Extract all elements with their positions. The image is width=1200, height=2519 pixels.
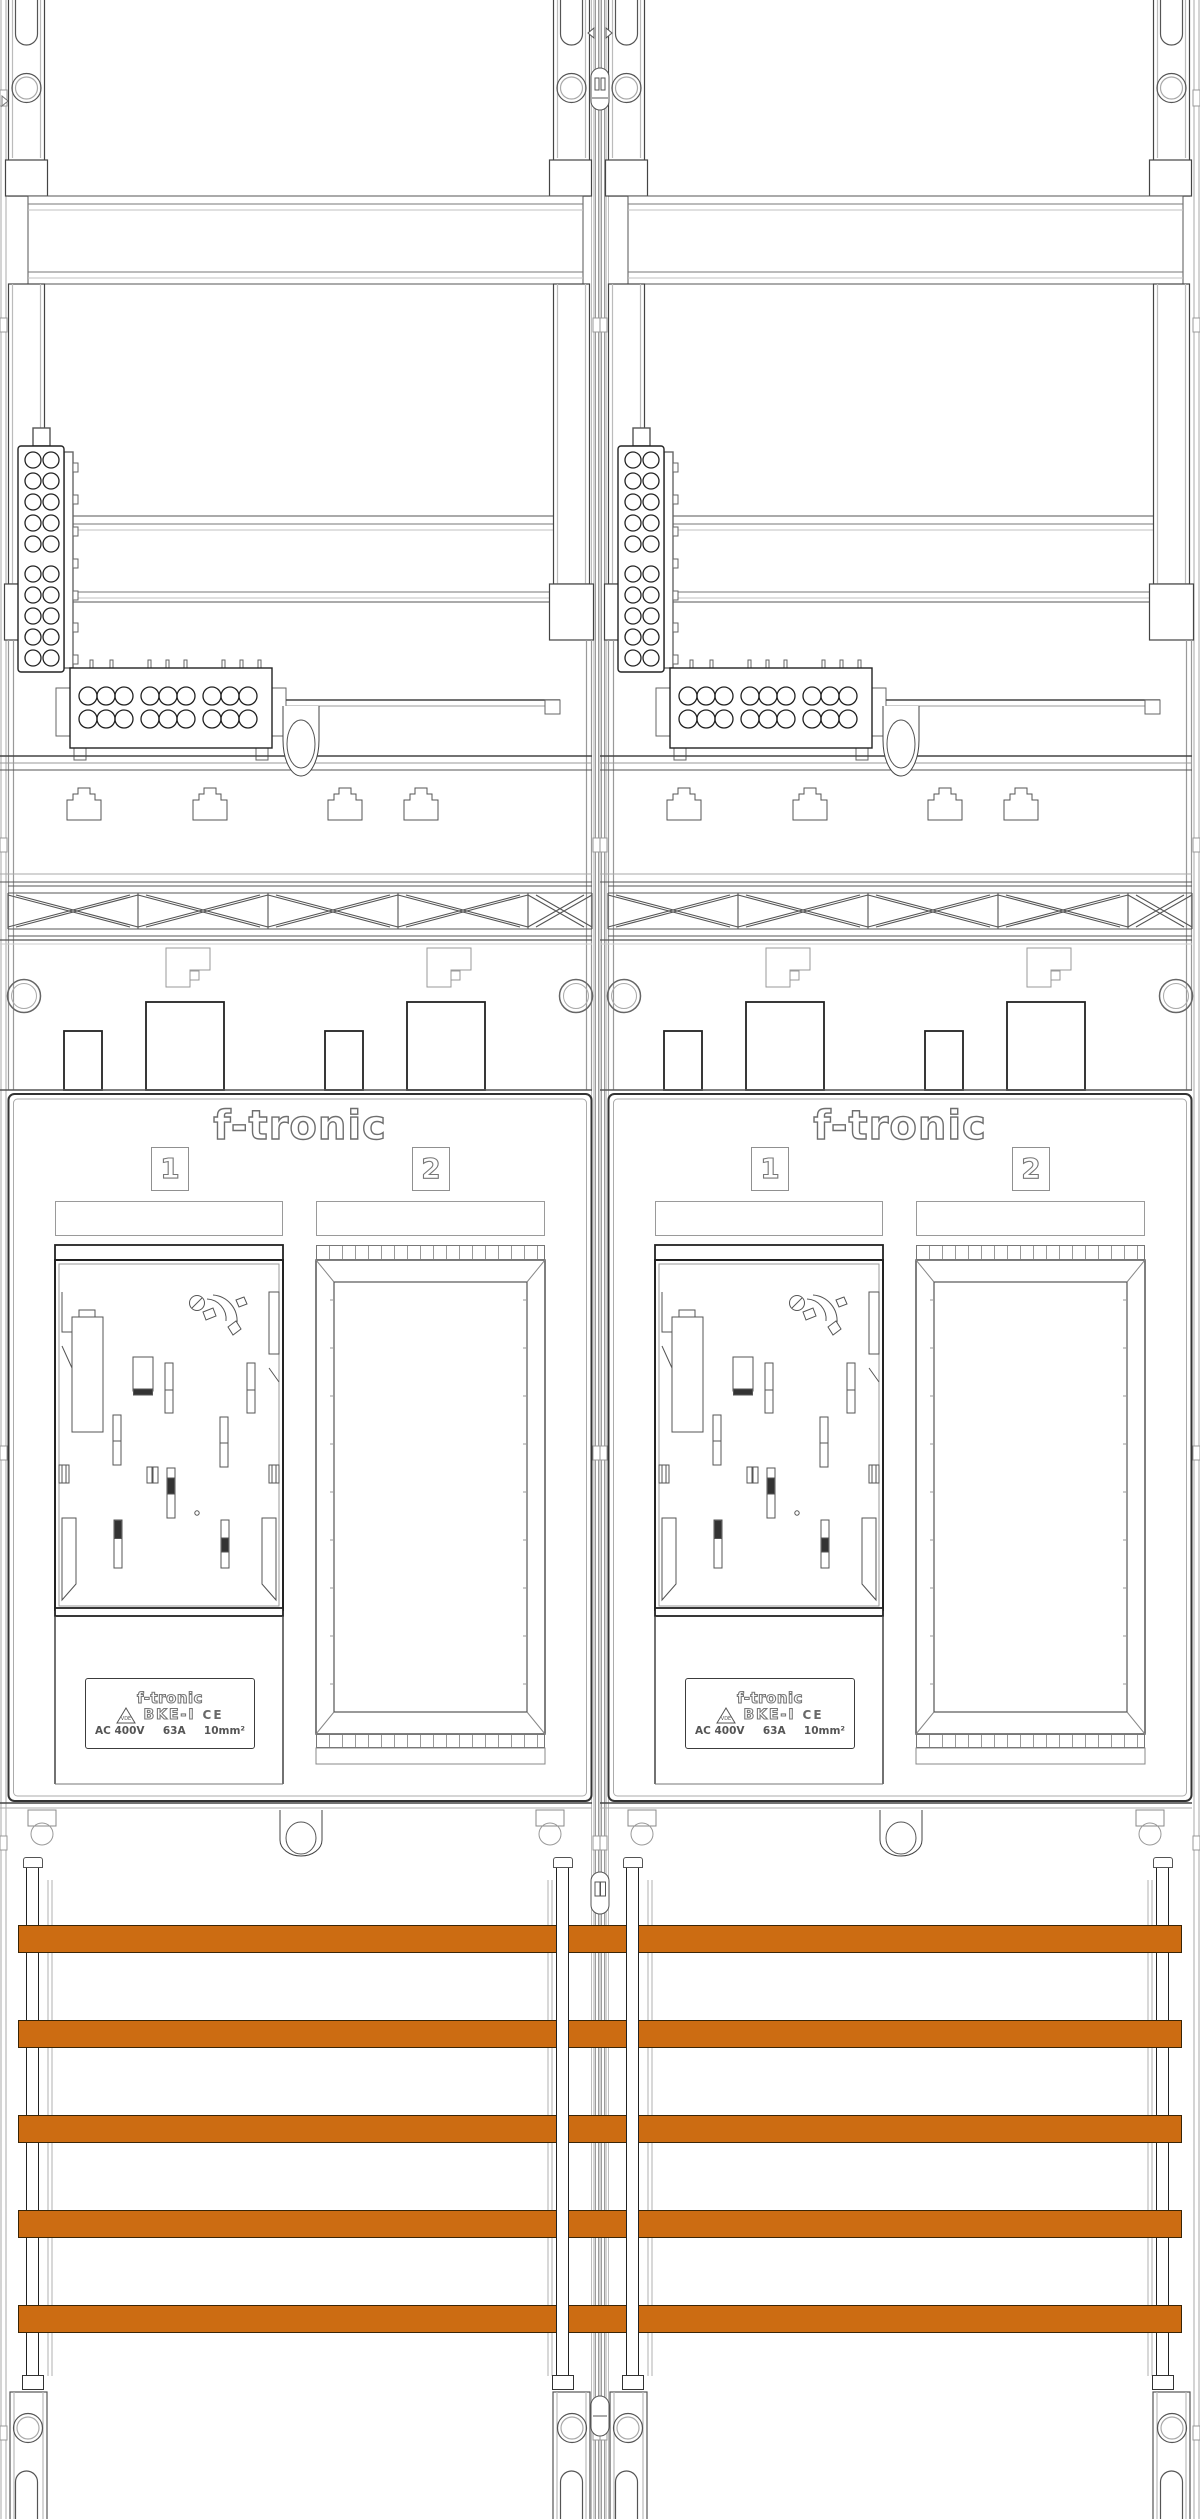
busbar [18, 2210, 1182, 2238]
busbar [18, 2305, 1182, 2333]
busbar [18, 2020, 1182, 2048]
busbar-support-rail [626, 1866, 639, 2376]
busbar-support-rail [556, 1866, 569, 2376]
busbar [18, 2115, 1182, 2143]
busbar [18, 1925, 1182, 1953]
drawing-canvas: f-tronic 1 2 f-tronic VDE BKE-I CE AC 40… [0, 0, 1200, 2519]
